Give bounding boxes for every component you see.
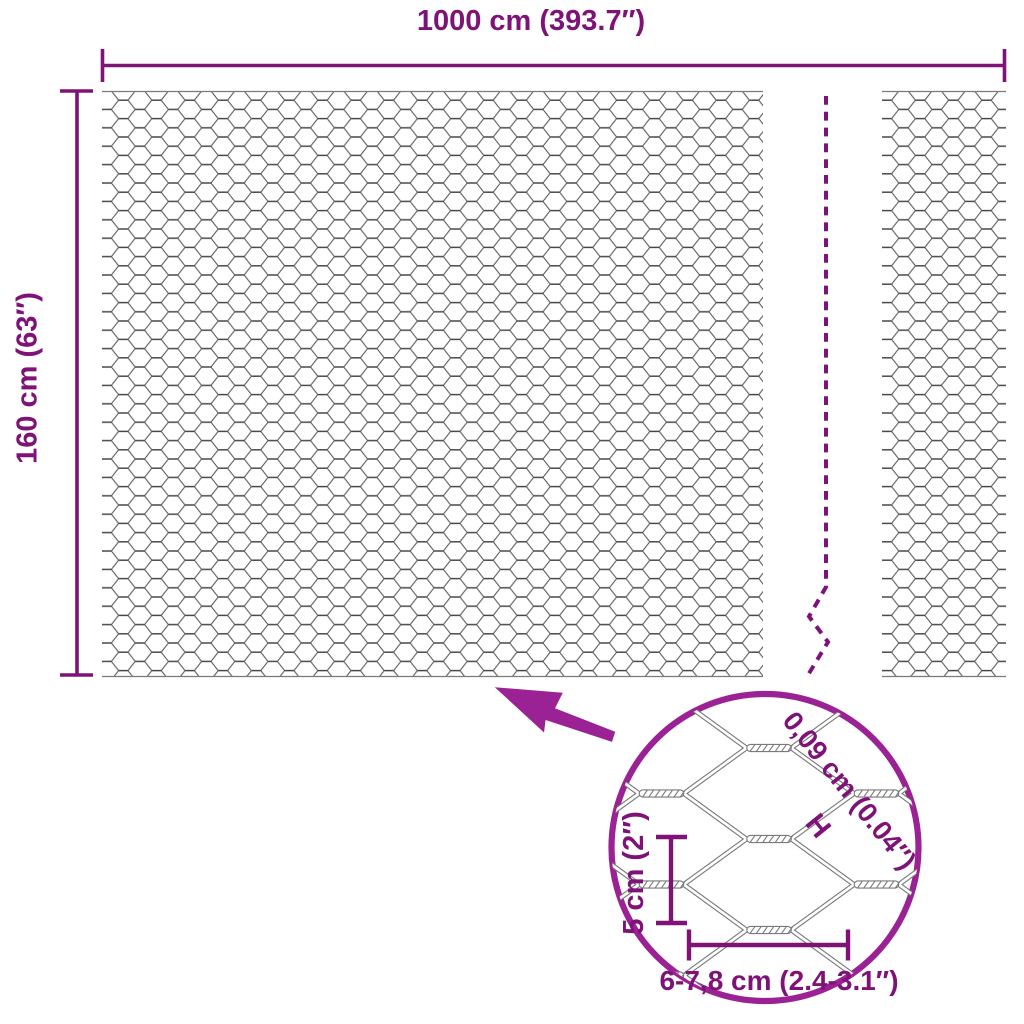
svg-text:1000 cm (393.7″): 1000 cm (393.7″)	[417, 5, 645, 37]
svg-text:5 cm (2″): 5 cm (2″)	[618, 811, 650, 935]
svg-text:160 cm (63″): 160 cm (63″)	[12, 292, 44, 464]
svg-text:6-7,8 cm (2.4-3.1″): 6-7,8 cm (2.4-3.1″)	[659, 965, 898, 996]
